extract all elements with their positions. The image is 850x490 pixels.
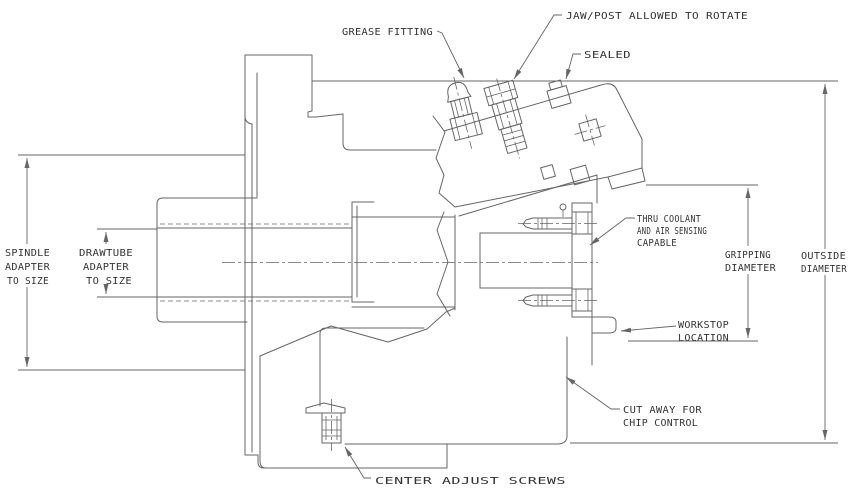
grease-fitting — [440, 74, 485, 153]
callout-thru-coolant: THRU COOLANT AND AIR SENSING CAPABLE — [590, 214, 707, 249]
sensor-port-small — [541, 165, 556, 180]
callout-center-adjust: CENTER ADJUST SCREWS — [345, 447, 566, 487]
callout-sealed: SEALED — [566, 50, 631, 79]
grease-fitting-label: GREASE FITTING — [342, 27, 433, 38]
callout-cut-away: CUT AWAY FOR CHIP CONTROL — [566, 377, 703, 429]
sealed-label: SEALED — [584, 50, 631, 61]
jaw-post — [482, 74, 534, 162]
drawtube-adapter-label-1: DRAWTUBE — [79, 248, 133, 259]
callout-jaw-post: JAW/POST ALLOWED TO ROTATE — [514, 11, 748, 79]
master-jaw — [433, 84, 645, 216]
workstop-label-1: WORKSTOP — [678, 320, 729, 331]
back-adapter-plate — [245, 55, 436, 468]
cut-away-label-2: CHIP CONTROL — [623, 418, 698, 429]
extension-lines — [18, 81, 838, 443]
spindle-adapter-label-2: ADAPTER — [5, 262, 51, 273]
outside-diameter-dimension: OUTSIDE DIAMETER — [801, 84, 848, 440]
sensor-port-upper — [570, 110, 610, 150]
thru-coolant-label-1: THRU COOLANT — [637, 214, 701, 225]
drawtube-adapter-label-3: TO SIZE — [86, 276, 132, 287]
chuck-section-drawing: OUTSIDE DIAMETER GRIPPING DIAMETER SPIND… — [0, 0, 850, 490]
jaw-post-label: JAW/POST ALLOWED TO ROTATE — [566, 11, 748, 22]
spindle-adapter-label-3: TO SIZE — [7, 276, 49, 287]
gripping-diameter-label-1: GRIPPING — [725, 250, 771, 261]
workstop-label-2: LOCATION — [678, 333, 729, 344]
callout-workstop: WORKSTOP LOCATION — [621, 320, 729, 344]
center-adjust-label: CENTER ADJUST SCREWS — [375, 476, 566, 487]
drawtube-adapter-label-2: ADAPTER — [83, 262, 130, 273]
center-adjust-screw — [306, 399, 345, 451]
cut-away-label-1: CUT AWAY FOR — [623, 405, 703, 416]
engineering-drawing-canvas: OUTSIDE DIAMETER GRIPPING DIAMETER SPIND… — [0, 0, 850, 490]
coolant-bolt-lower — [518, 289, 597, 311]
coolant-bolt-upper — [518, 212, 597, 234]
gripping-diameter-label-2: DIAMETER — [725, 263, 777, 274]
spindle-adapter-flange — [157, 198, 374, 322]
thru-coolant-label-3: CAPABLE — [637, 238, 677, 249]
gripping-diameter-dimension: GRIPPING DIAMETER — [725, 188, 777, 338]
outside-diameter-label-2: DIAMETER — [801, 264, 848, 275]
outside-diameter-label-1: OUTSIDE — [801, 251, 846, 262]
body-lower — [260, 308, 567, 468]
sealed-plug — [545, 79, 571, 109]
drawtube-adapter-dimension: DRAWTUBE ADAPTER TO SIZE — [79, 232, 133, 294]
spindle-adapter-dimension: SPINDLE ADAPTER TO SIZE — [5, 158, 51, 367]
callout-grease-fitting: GREASE FITTING — [342, 27, 464, 78]
chuck-body-bore — [352, 212, 572, 316]
spindle-adapter-label-1: SPINDLE — [5, 248, 50, 259]
thru-coolant-label-2: AND AIR SENSING — [637, 226, 707, 237]
